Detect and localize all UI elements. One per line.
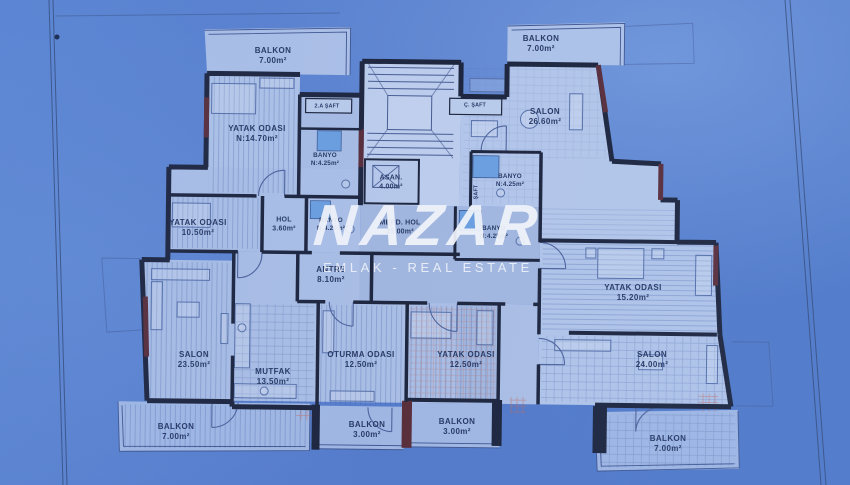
room-area: 12.50m² [327, 360, 394, 370]
room-name: BANYO [311, 152, 339, 160]
room-area: 7.00m² [255, 56, 292, 66]
room-area: 4.00m² [379, 183, 402, 192]
label-yatak-odasi-1050: YATAK ODASI 10.50m² [169, 218, 227, 238]
label-balkon-top-left: BALKON 7.00m² [255, 46, 292, 66]
room-name: BANYO [317, 217, 345, 225]
room-name: BANYO [480, 225, 508, 233]
label-balkon-bottom-left: BALKON 7.00m² [158, 422, 195, 442]
label-oturma-odasi: OTURMA ODASI 12.50m² [327, 350, 394, 370]
room-name: YATAK ODASI [169, 218, 227, 228]
shaft-label: ŞAFT [474, 185, 481, 200]
label-shaft-left: 2.A ŞAFT [315, 104, 340, 111]
room-area: 7.00m² [158, 432, 195, 442]
room-area: 7.00m² [523, 44, 560, 54]
room-name: YATAK ODASI [604, 283, 662, 293]
room-name: YATAK ODASI [437, 350, 495, 360]
label-yatak-odasi-1470: YATAK ODASI N:14.70m² [228, 124, 286, 144]
room-name: BALKON [158, 422, 195, 432]
floor-plan-photo: BALKON 7.00m² YATAK ODASI N:14.70m² BANY… [0, 0, 850, 485]
label-salon-2660: SALON 26.60m² [529, 107, 562, 127]
room-area: 23.50m² [178, 360, 211, 370]
room-area: 25.00m² [379, 228, 420, 237]
label-merdiven-hol: MERD. HOL 25.00m² [379, 219, 420, 237]
room-name: BALKON [650, 434, 687, 444]
shaft-label: 2.A ŞAFT [315, 104, 340, 111]
room-area: 3.60m² [272, 225, 295, 234]
room-name: HOL [272, 216, 295, 225]
label-hol: HOL 3.60m² [272, 216, 295, 234]
room-name: ASAN. [379, 174, 402, 183]
label-balkon-bottom-mid-1: BALKON 3.00m² [349, 420, 386, 440]
room-area: 12.50m² [437, 360, 495, 370]
room-name: SALON [636, 350, 669, 360]
label-banyo-top-left: BANYO N:4.25m² [311, 152, 339, 168]
room-area: N:14.70m² [228, 134, 286, 144]
label-yatak-odasi-1250: YATAK ODASI 12.50m² [437, 350, 495, 370]
room-area: 10.50m² [169, 228, 227, 238]
room-name: YATAK ODASI [228, 124, 286, 134]
room-area: N:4.25m² [311, 160, 339, 168]
label-balkon-bottom-mid-2: BALKON 3.00m² [439, 417, 476, 437]
room-name: MUTFAK [255, 367, 291, 377]
label-asansor: ASAN. 4.00m² [379, 174, 402, 192]
label-salon-2400: SALON 24.00m² [636, 350, 669, 370]
room-labels: BALKON 7.00m² YATAK ODASI N:14.70m² BANY… [0, 0, 850, 485]
room-name: BALKON [349, 420, 386, 430]
room-name: SALON [529, 107, 562, 117]
label-banyo-middle: BANYO N:4.20m² [317, 217, 345, 233]
room-name: MERD. HOL [379, 219, 420, 228]
room-name: BANYO [496, 173, 524, 181]
plan-layer: BALKON 7.00m² YATAK ODASI N:14.70m² BANY… [0, 0, 850, 485]
room-area: 24.00m² [636, 360, 669, 370]
room-area: N:4.25m² [480, 233, 508, 241]
label-shaft-right: Ç. ŞAFT [464, 103, 486, 110]
room-area: 15.20m² [604, 293, 662, 303]
label-banyo-top-right: BANYO N:4.25m² [496, 173, 524, 189]
room-area: N:4.25m² [496, 181, 524, 189]
room-area: 7.00m² [650, 444, 687, 454]
label-balkon-bottom-right: BALKON 7.00m² [650, 434, 687, 454]
label-mutfak: MUTFAK 13.50m² [255, 367, 291, 387]
label-antre: ANTRE 8.10m² [316, 265, 346, 285]
room-name: SALON [178, 350, 211, 360]
room-name: BALKON [255, 46, 292, 56]
label-balkon-top-right: BALKON 7.00m² [523, 34, 560, 54]
room-area: 13.50m² [255, 377, 291, 387]
shaft-label: Ç. ŞAFT [464, 103, 486, 110]
room-area: 26.60m² [529, 117, 562, 127]
room-name: BALKON [439, 417, 476, 427]
room-area: 3.00m² [349, 430, 386, 440]
label-shaft-vertical: ŞAFT [474, 185, 481, 200]
label-banyo-right: BANYO N:4.25m² [480, 225, 508, 241]
label-yatak-odasi-1520: YATAK ODASI 15.20m² [604, 283, 662, 303]
room-name: OTURMA ODASI [327, 350, 394, 360]
room-name: BALKON [523, 34, 560, 44]
room-area: 8.10m² [316, 275, 346, 285]
label-salon-2350: SALON 23.50m² [178, 350, 211, 370]
room-area: N:4.20m² [317, 225, 345, 233]
room-name: ANTRE [316, 265, 346, 275]
room-area: 3.00m² [439, 427, 476, 437]
